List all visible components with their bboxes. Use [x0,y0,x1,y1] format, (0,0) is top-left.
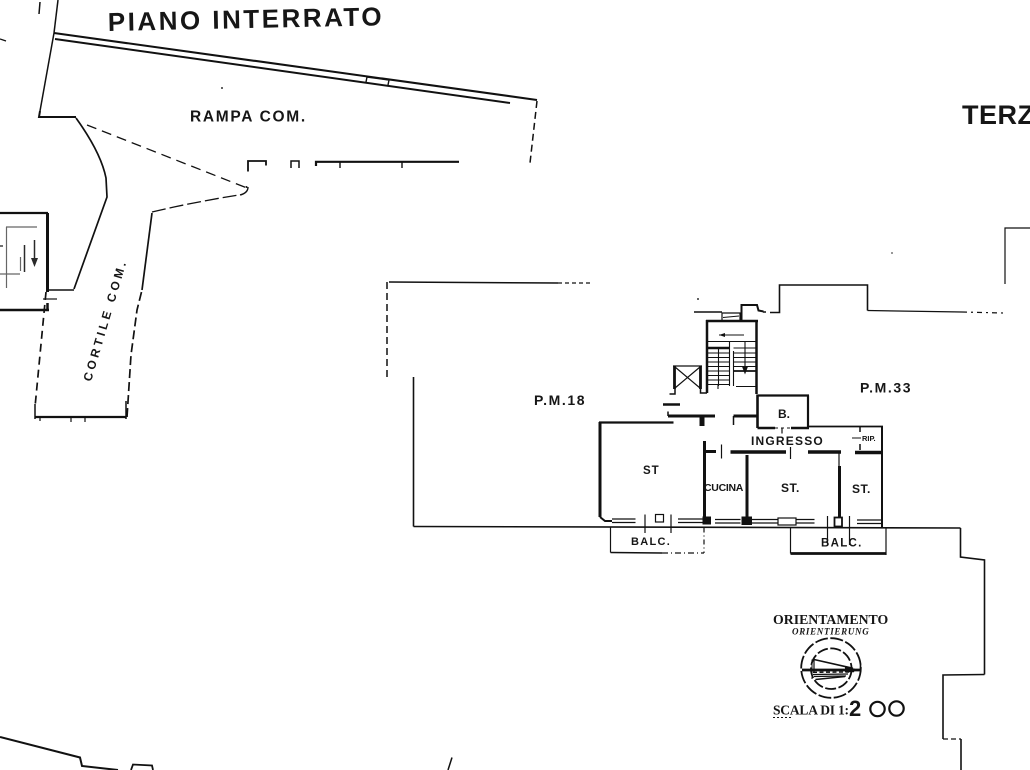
svg-text:RIP.: RIP. [862,434,876,443]
svg-text:PIANO INTERRATO: PIANO INTERRATO [107,1,384,37]
svg-text:ST.: ST. [781,481,800,495]
svg-text:CUCINA: CUCINA [704,482,744,494]
svg-text:RAMPA COM.: RAMPA COM. [190,109,307,126]
svg-text:P.M.18: P.M.18 [534,392,586,408]
svg-text:BALC.: BALC. [631,536,671,548]
svg-text:B.: B. [778,407,790,421]
svg-text:2: 2 [849,696,861,721]
svg-text:ST.: ST. [852,482,871,496]
svg-text:SCALA DI 1:: SCALA DI 1: [773,703,849,718]
svg-text:BALC.: BALC. [821,538,863,550]
svg-text:ST: ST [643,465,660,477]
svg-text:ORIENTIERUNG: ORIENTIERUNG [792,627,869,637]
svg-text:TERZ: TERZ [962,100,1030,130]
svg-text:CORTILE COM.: CORTILE COM. [80,257,129,383]
svg-text:ORIENTAMENTO: ORIENTAMENTO [773,612,889,627]
svg-text:INGRESSO: INGRESSO [751,434,824,448]
svg-text:P.M.33: P.M.33 [860,380,912,396]
